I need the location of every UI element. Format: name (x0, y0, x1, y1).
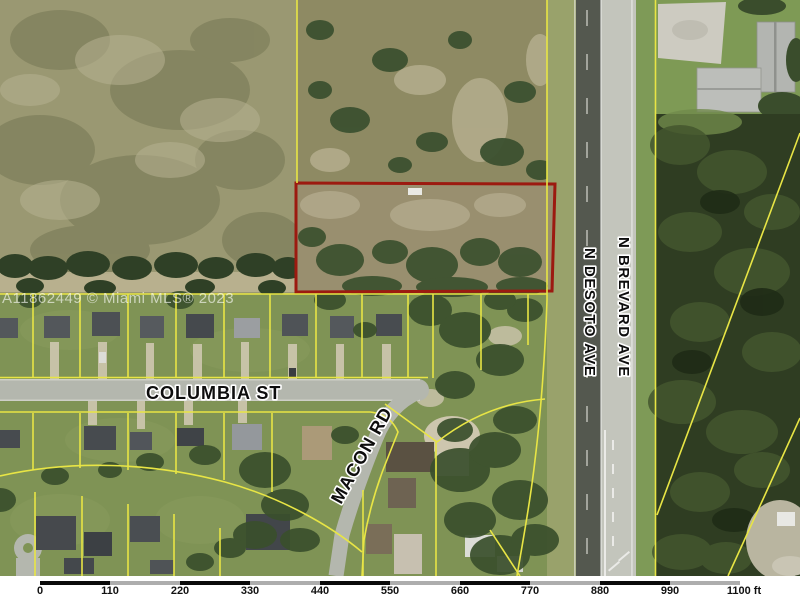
scale-bar: 0 110 220 330 440 550 660 770 880 990 11… (0, 576, 800, 600)
scale-tick-label: 550 (381, 585, 399, 597)
scale-segment (250, 581, 320, 585)
house-roof (0, 430, 20, 448)
house-roof (366, 524, 392, 554)
house-roof (64, 558, 94, 574)
scale-tick-label: 110 (101, 585, 119, 597)
highway (547, 0, 656, 576)
n-brevard-ave-label: N BREVARD AVE (615, 237, 632, 378)
scale-tick-label: 880 (591, 585, 609, 597)
scale-tick-label: 660 (451, 585, 469, 597)
scale-segment (320, 581, 390, 585)
subject-parcel (296, 183, 555, 297)
house-roof (140, 316, 164, 338)
scale-segment (390, 581, 460, 585)
commercial-lot (656, 0, 800, 120)
house-roof (130, 516, 160, 542)
car (99, 352, 106, 363)
house-roof (330, 316, 354, 338)
scale-tick-label: 1100 ft (727, 585, 761, 597)
house-roof (302, 426, 332, 460)
scale-segment (460, 581, 530, 585)
small-building (777, 512, 795, 526)
house-roof (386, 442, 434, 472)
house-roof (36, 516, 76, 550)
cul-de-sac-island (23, 543, 33, 553)
residential-area (0, 290, 559, 576)
pad-stain (672, 20, 708, 40)
house-roof (92, 312, 120, 336)
house-roof (282, 314, 308, 336)
warehouse-roof-ridge (774, 22, 777, 92)
scale-segment (530, 581, 600, 585)
road-stub (16, 558, 40, 576)
house-roof (232, 424, 262, 450)
scale-tick-label: 220 (171, 585, 189, 597)
scale-segment (110, 581, 180, 585)
house-roof (388, 478, 416, 508)
scale-segment (600, 581, 670, 585)
scale-tick-label: 440 (311, 585, 329, 597)
scale-tick-label: 990 (661, 585, 679, 597)
lane-line-center (600, 0, 602, 576)
woods-area (648, 109, 800, 576)
highway-median (636, 0, 656, 576)
house-roof (44, 316, 70, 338)
mls-watermark: A11862449 © Miami MLS® 2023 (2, 290, 234, 307)
car (289, 368, 296, 378)
house-roof (186, 314, 214, 338)
columbia-st-label: COLUMBIA ST (146, 383, 281, 403)
edge-line-west (574, 0, 576, 576)
field-area (0, 0, 304, 296)
scale-segment (40, 581, 110, 585)
road-edge (0, 379, 420, 381)
vehicle-on-parcel (408, 188, 422, 195)
house-roof (84, 532, 112, 556)
aerial-map-canvas: A11862449 © Miami MLS® 2023 COLUMBIA ST … (0, 0, 800, 576)
house-roof (130, 432, 152, 450)
scale-tick-label: 0 (37, 585, 43, 597)
house-roof (234, 318, 260, 338)
house-roof (150, 560, 174, 574)
house-roof (394, 534, 422, 574)
n-desoto-ave-label: N DESOTO AVE (581, 248, 598, 377)
house-roof (376, 314, 402, 336)
house-roof (84, 426, 116, 450)
aerial-map-image: A11862449 © Miami MLS® 2023 COLUMBIA ST … (0, 0, 800, 600)
house-roof (0, 318, 18, 338)
scale-segment (180, 581, 250, 585)
scale-tick-label: 770 (521, 585, 539, 597)
house-roof (176, 428, 204, 446)
scale-tick-label: 330 (241, 585, 259, 597)
warehouse-wing-ridge (697, 88, 761, 90)
